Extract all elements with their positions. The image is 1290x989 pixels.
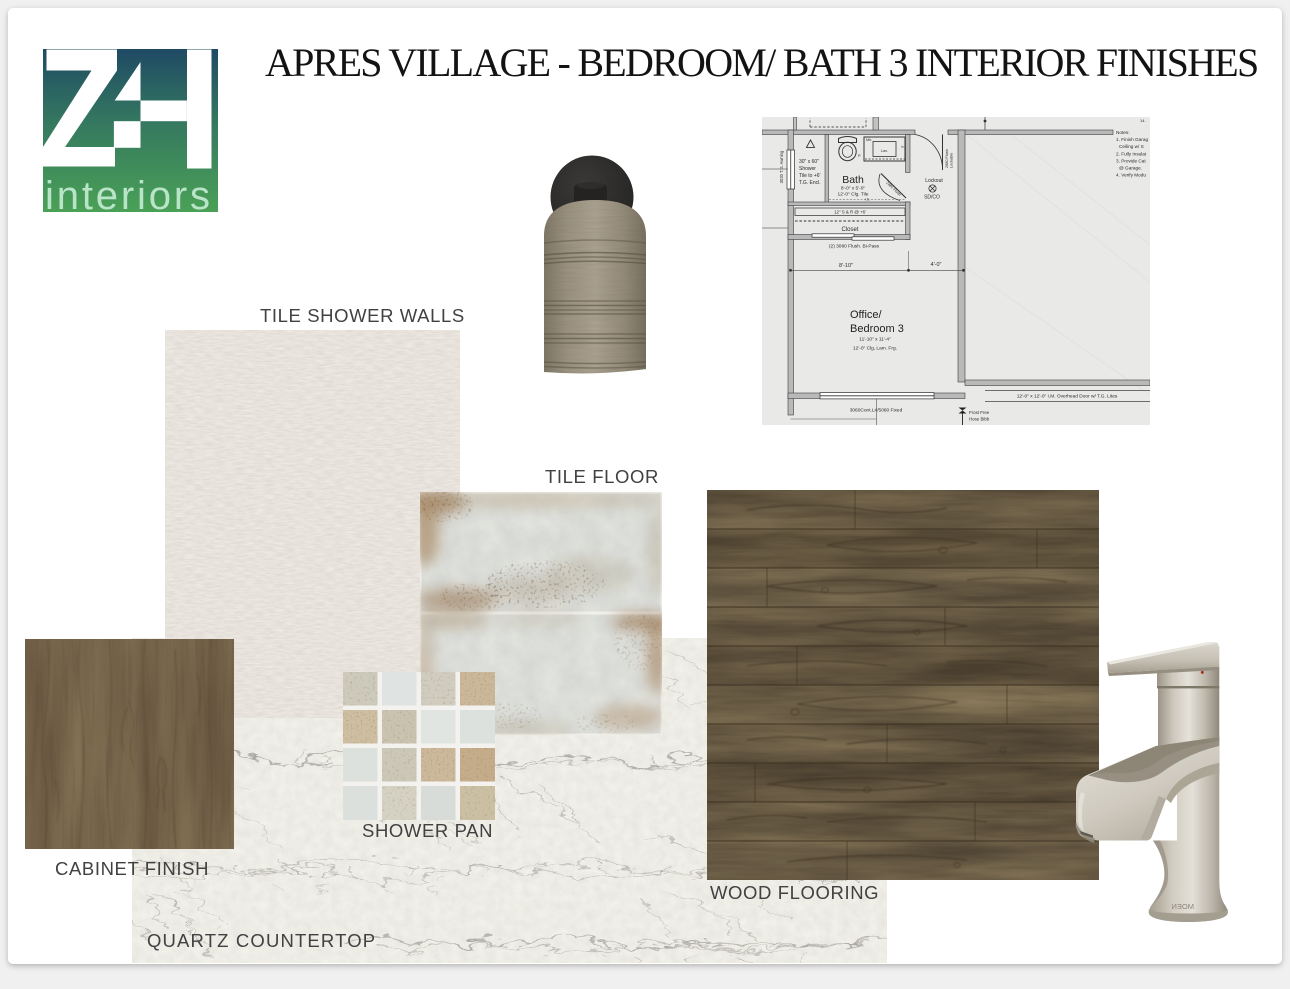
svg-text:4. Verify Modu: 4. Verify Modu (1116, 173, 1146, 178)
svg-text:interiors: interiors (45, 174, 210, 212)
svg-text:Lav.: Lav. (881, 149, 888, 153)
svg-text:Bedroom 3: Bedroom 3 (850, 323, 904, 335)
svg-text:SD/CO: SD/CO (924, 195, 940, 201)
svg-text:3020 T.G. Awning: 3020 T.G. Awning (779, 150, 784, 183)
svg-text:1. Finish Garag: 1. Finish Garag (1116, 137, 1148, 142)
svg-text:Lockout: Lockout (925, 178, 943, 184)
svg-text:11'-10" x 11'-4": 11'-10" x 11'-4" (859, 337, 891, 343)
svg-text:Frost Free: Frost Free (969, 410, 990, 415)
svg-text:2. Fully Insulat: 2. Fully Insulat (1116, 151, 1147, 156)
svg-text:8'-10": 8'-10" (839, 263, 853, 269)
svg-text:Notes:: Notes: (1116, 130, 1130, 135)
svg-text:12'-0" Clg, Lam. Frg.: 12'-0" Clg, Lam. Frg. (853, 346, 897, 352)
svg-text:Bath: Bath (842, 174, 864, 186)
svg-text:Mir.: Mir. (866, 138, 872, 142)
svg-text:Shower: Shower (799, 166, 816, 172)
svg-text:MOEN: MOEN (1172, 902, 1195, 911)
svg-text:T.G. Encl.: T.G. Encl. (799, 180, 821, 186)
svg-text:Office/: Office/ (850, 309, 883, 321)
svg-text:(2) 3080 Flush. Bi-Pass: (2) 3080 Flush. Bi-Pass (829, 244, 880, 250)
svg-text:b.: b. (902, 145, 905, 149)
svg-text:3060Cont.L#/5060 Fixed: 3060Cont.L#/5060 Fixed (850, 408, 903, 414)
svg-text:2680 Flush: 2680 Flush (945, 149, 949, 168)
svg-text:@ Garage.: @ Garage. (1119, 166, 1142, 171)
svg-text:12'-0" x 12'-0" I.M. Overhead: 12'-0" x 12'-0" I.M. Overhead Door w/ T.… (1017, 394, 1118, 400)
svg-text:Hose Bibb: Hose Bibb (969, 417, 990, 422)
svg-text:30" x 60": 30" x 60" (799, 159, 819, 165)
svg-text:8'-0" x 5'-0": 8'-0" x 5'-0" (841, 186, 865, 192)
svg-text:12" S & R @ +6': 12" S & R @ +6' (834, 210, 866, 215)
svg-text:3. Provide Cat: 3. Provide Cat (1116, 158, 1146, 163)
svg-text:Lockable: Lockable (950, 153, 954, 168)
svg-text:Closet: Closet (841, 227, 858, 233)
svg-text:Tile to +6': Tile to +6' (799, 173, 821, 179)
svg-text:P.: P. (858, 154, 861, 158)
svg-text:4'-0": 4'-0" (931, 262, 942, 268)
svg-text:Ceiling w/ S: Ceiling w/ S (1119, 144, 1144, 149)
svg-text:14.: 14. (1140, 118, 1146, 123)
